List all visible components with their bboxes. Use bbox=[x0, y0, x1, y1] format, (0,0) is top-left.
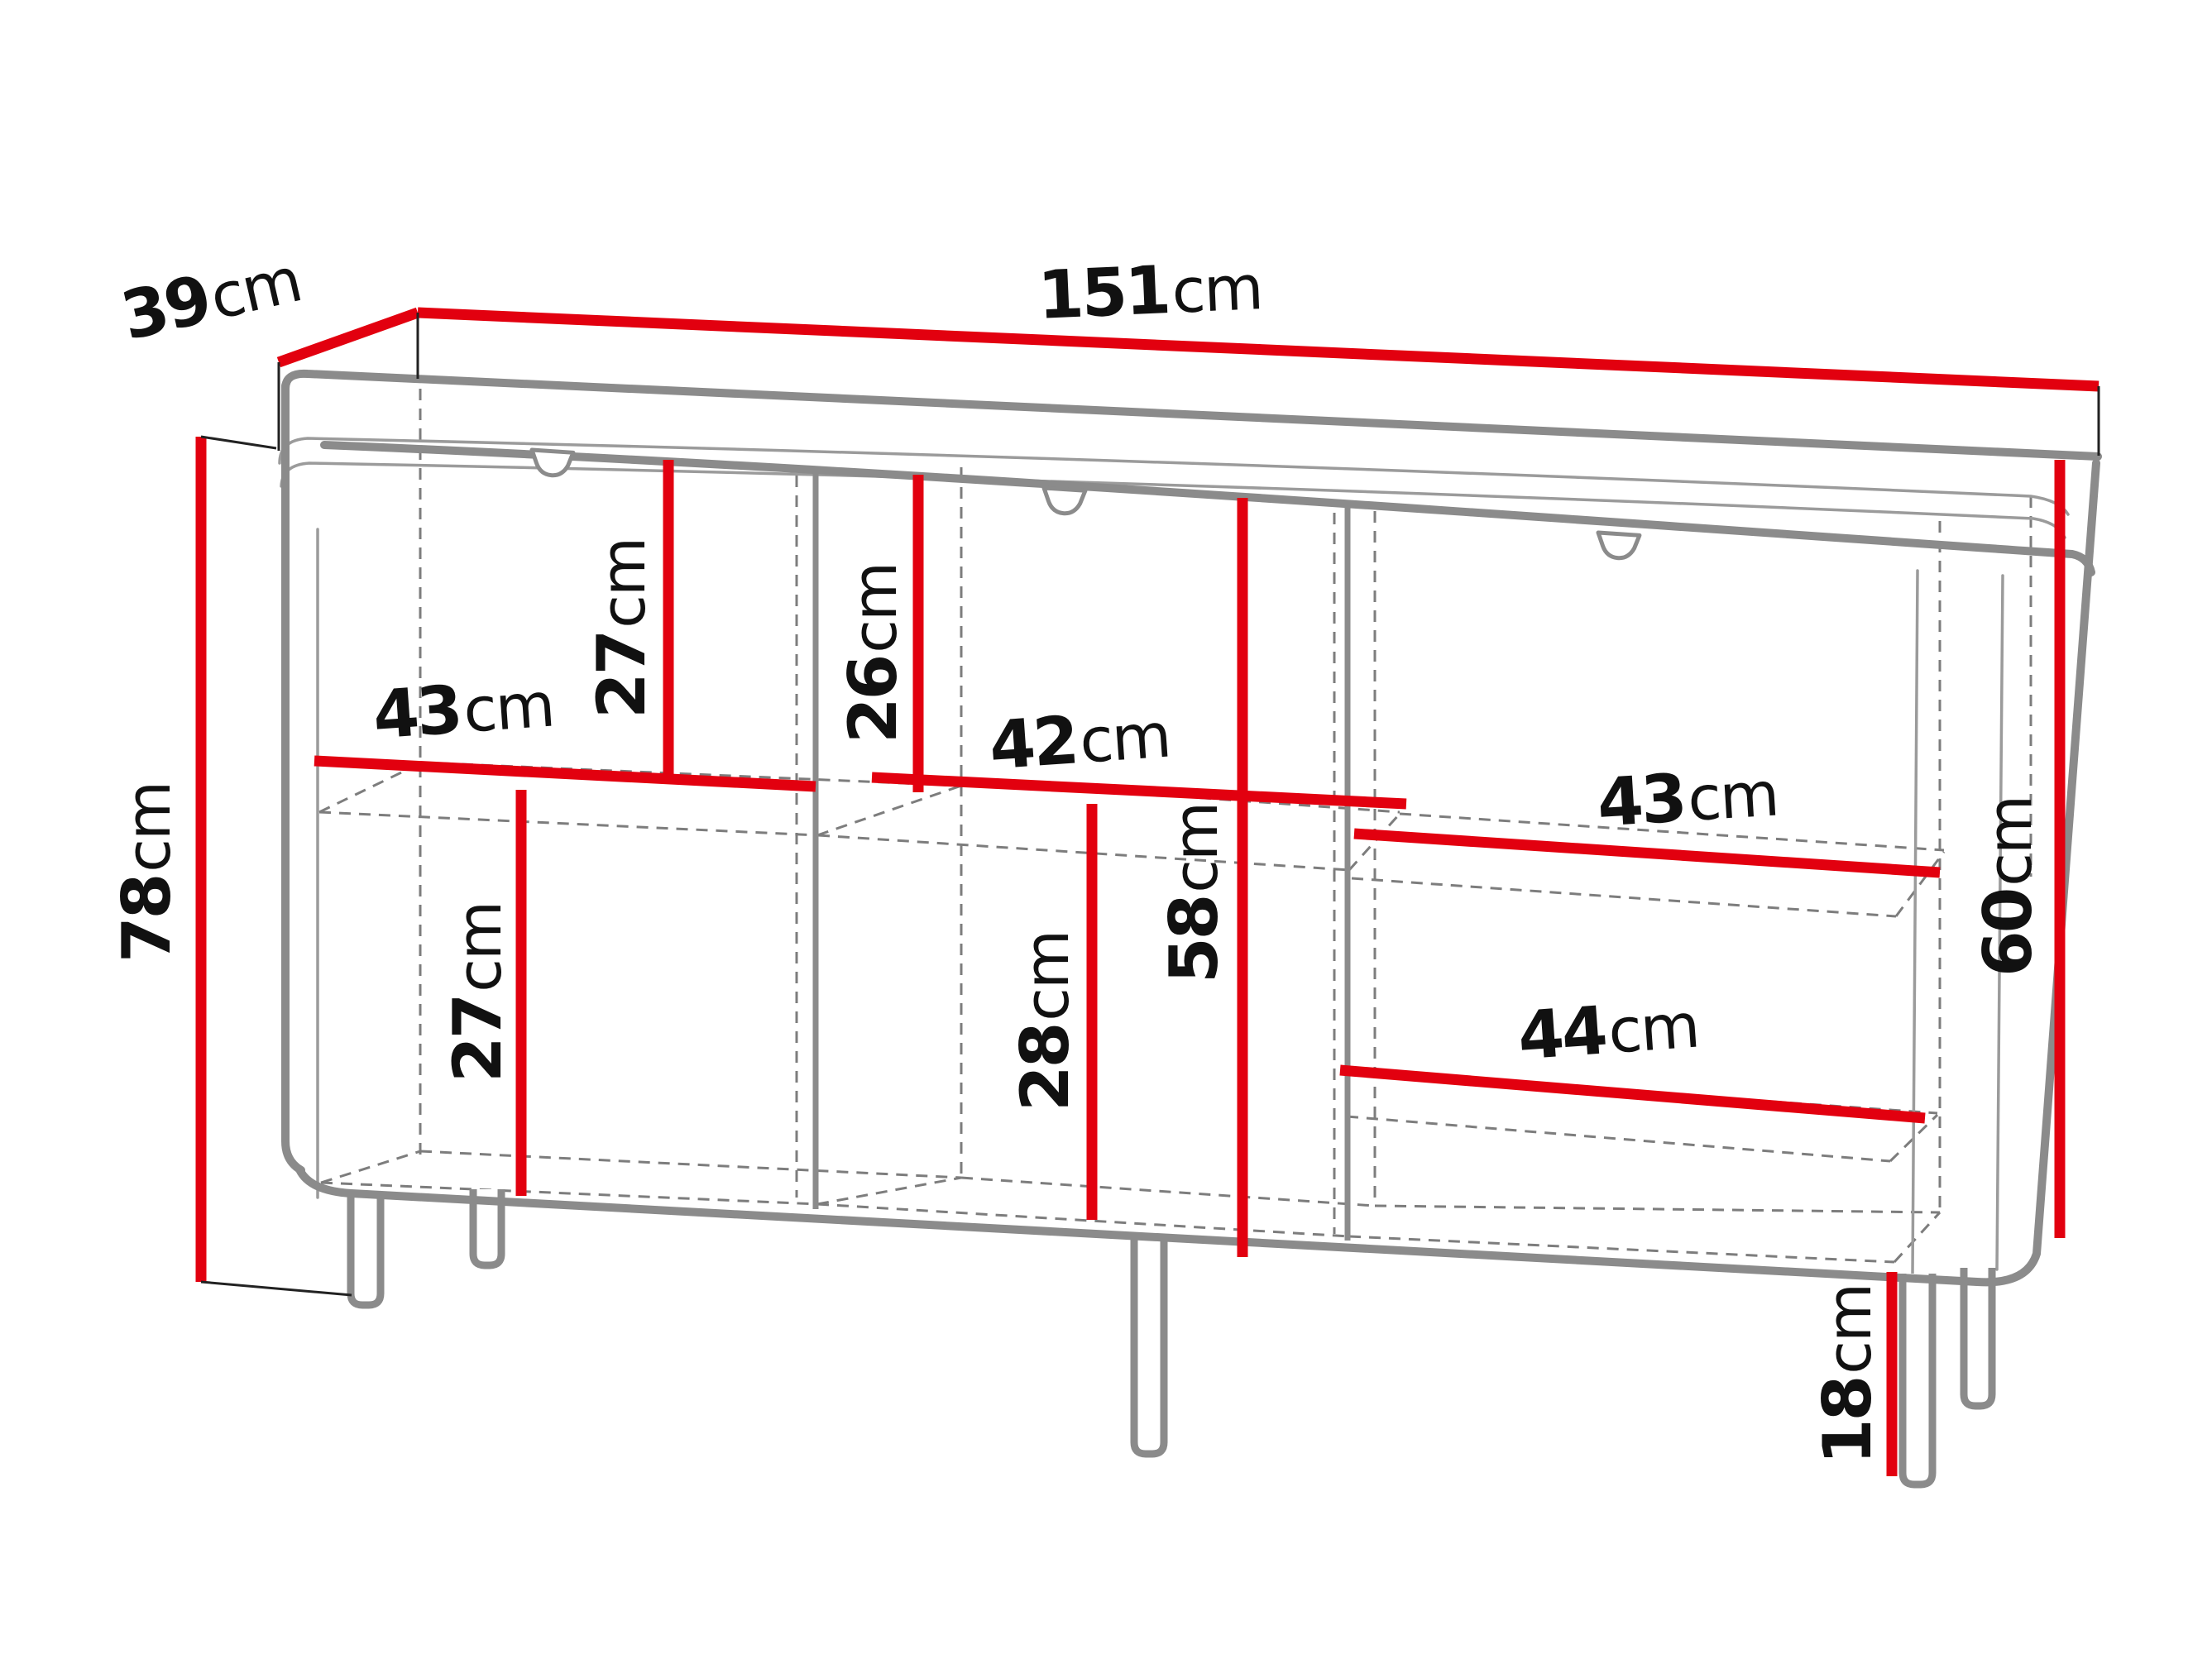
furniture-dimension-diagram: 39cm 151cm 78cm 27cm 43cm 26cm 42cm 27cm… bbox=[0, 0, 2212, 1659]
dimension-line-right-width bbox=[1354, 834, 1940, 873]
dimension-unit: cm bbox=[1078, 705, 1172, 772]
dashed-bottom-right-back bbox=[1375, 1206, 1940, 1212]
height-line-top-connector bbox=[201, 437, 276, 448]
right-door-handle-icon bbox=[1597, 533, 1640, 558]
dimension-unit: cm bbox=[1017, 931, 1078, 1021]
left-back-edge bbox=[285, 385, 301, 1170]
dimension-unit: cm bbox=[1171, 257, 1263, 323]
height-line-bottom-connector bbox=[201, 1282, 352, 1295]
dimension-value: 43 bbox=[371, 677, 462, 748]
middle-door-handle-icon bbox=[1043, 488, 1085, 514]
dimension-unit: cm bbox=[1166, 803, 1227, 893]
dimension-value: 42 bbox=[987, 707, 1079, 779]
dimension-unit: cm bbox=[1819, 1284, 1880, 1375]
dimension-value: 43 bbox=[1596, 765, 1687, 836]
dimension-value: 27 bbox=[445, 996, 511, 1083]
dashed-right-shelf-right-diagonal bbox=[1896, 852, 1944, 916]
dimension-label-left-width: 43cm bbox=[371, 670, 555, 748]
dimension-unit: cm bbox=[118, 782, 180, 873]
dimension-value: 60 bbox=[1975, 890, 2042, 977]
dimension-value: 28 bbox=[1013, 1025, 1079, 1112]
dimension-unit: cm bbox=[593, 538, 654, 629]
dimension-value: 78 bbox=[114, 876, 180, 963]
dimension-label-height: 78cm bbox=[114, 782, 180, 963]
dimension-unit: cm bbox=[462, 674, 556, 741]
dashed-left-shelf-front bbox=[319, 812, 817, 835]
dimension-label-width: 151cm bbox=[1037, 253, 1263, 329]
dimension-unit: cm bbox=[845, 563, 906, 653]
legs bbox=[351, 1189, 1992, 1484]
front-left-leg bbox=[351, 1194, 381, 1305]
back-right-leg bbox=[1964, 1268, 1992, 1406]
dashed-middle-shelf-right-diagonal bbox=[1349, 814, 1400, 870]
dashed-left-shelf-right-diagonal bbox=[817, 786, 961, 835]
dimension-line-right-drawer-width bbox=[1340, 1070, 1925, 1118]
dashed-bottom-left-back bbox=[420, 1151, 961, 1178]
dimension-label-left-lower-height: 27cm bbox=[445, 902, 511, 1083]
dashed-bottom-right-diagonal bbox=[1894, 1212, 1940, 1262]
dimension-unit: cm bbox=[1606, 995, 1701, 1062]
dimension-line-middle-width bbox=[872, 777, 1406, 804]
dimension-value: 44 bbox=[1515, 997, 1607, 1069]
dimension-value: 39 bbox=[116, 266, 216, 351]
dashed-middle-shelf-front bbox=[818, 835, 1349, 870]
dimension-label-middle-upper-height: 26cm bbox=[840, 563, 907, 743]
dimension-label-middle-lower-height: 28cm bbox=[1013, 931, 1079, 1112]
dimension-value: 27 bbox=[589, 632, 655, 719]
dashed-right-drawer-front bbox=[1347, 1116, 1890, 1161]
front-right-leg bbox=[1903, 1274, 1932, 1484]
dashed-bottom-left-right-diagonal bbox=[817, 1178, 961, 1204]
dimension-label-middle-interior-height: 58cm bbox=[1161, 803, 1228, 983]
dimension-value: 26 bbox=[840, 657, 907, 743]
dimension-line-depth bbox=[279, 313, 418, 362]
dimension-label-right-drawer-width: 44cm bbox=[1515, 991, 1700, 1069]
dimension-value: 18 bbox=[1815, 1378, 1881, 1465]
dimension-label-right-interior-height: 60cm bbox=[1975, 796, 2042, 977]
dashed-right-shelf-front bbox=[1352, 878, 1896, 916]
dimension-value: 58 bbox=[1161, 896, 1228, 983]
dimension-label-left-upper-height: 27cm bbox=[589, 538, 655, 719]
left-door-handle-icon bbox=[531, 450, 573, 476]
dimension-label-leg-height: 18cm bbox=[1815, 1284, 1881, 1465]
dimension-line-left-width bbox=[314, 761, 816, 786]
dimension-unit: cm bbox=[204, 249, 306, 329]
dimension-unit: cm bbox=[1980, 796, 2041, 887]
dimension-line-width bbox=[418, 313, 2099, 386]
extension-lines bbox=[201, 313, 2099, 1295]
dimension-value: 151 bbox=[1037, 257, 1170, 329]
dimension-unit: cm bbox=[449, 902, 510, 992]
dashed-bottom-left-diagonal bbox=[321, 1151, 420, 1183]
dimension-label-middle-width: 42cm bbox=[987, 700, 1171, 779]
dimension-label-right-width: 43cm bbox=[1596, 759, 1780, 836]
right-door-gap-edge bbox=[1913, 571, 1918, 1274]
dimension-unit: cm bbox=[1686, 763, 1779, 830]
dashed-bottom-middle-back bbox=[961, 1178, 1375, 1206]
front-middle-leg bbox=[1134, 1237, 1164, 1454]
